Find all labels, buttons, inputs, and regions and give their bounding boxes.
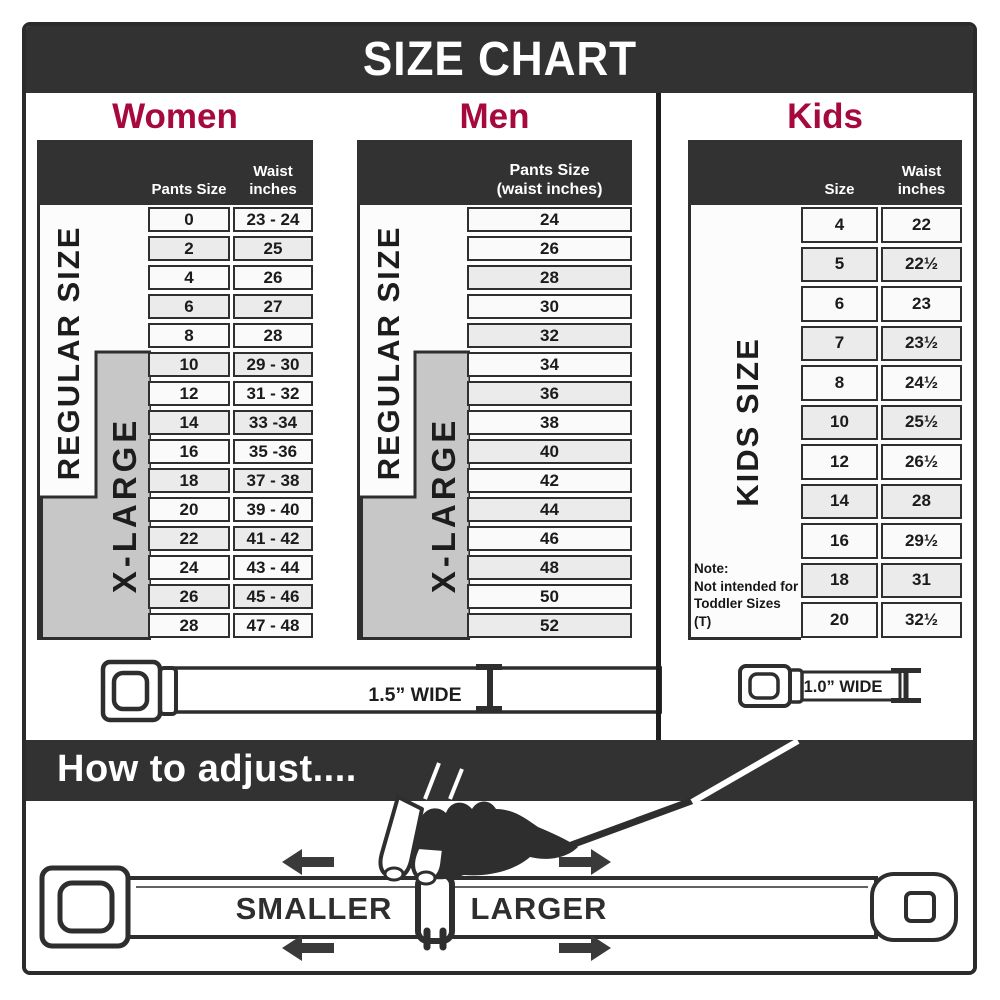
table-row: 1025½ [801,403,962,443]
chart-frame: SIZE CHART Women Men Kids Pants Size Wai… [22,22,977,975]
men-size-range-panel: REGULAR SIZE X-LARGE [357,205,467,640]
size-cell: 14 [148,410,230,435]
table-row: 38 [467,408,632,437]
waist-cell: 22½ [881,247,962,283]
kids-table-body: KIDS SIZE Note: Not intended for Toddler… [688,205,962,640]
size-cell: 22 [148,526,230,551]
tables-area: Women Men Kids Pants Size Waist inches R… [26,93,973,740]
table-row: 723½ [801,324,962,364]
size-cell: 20 [148,497,230,522]
waist-cell: 29 - 30 [233,352,313,377]
table-row: 1029 - 30 [148,350,313,379]
table-row: 1433 -34 [148,408,313,437]
waist-cell: 47 - 48 [233,613,313,638]
men-table-body: REGULAR SIZE X-LARGE 2426283032343638404… [357,205,632,640]
size-cell: 2 [148,236,230,261]
larger-label: LARGER [471,891,608,926]
size-cell: 10 [148,352,230,377]
men-rows: 242628303234363840424446485052 [467,205,632,640]
men-section-title: Men [357,97,632,137]
waist-cell: 23½ [881,326,962,362]
kids-section-title: Kids [688,97,962,137]
kids-size-panel: KIDS SIZE Note: Not intended for Toddler… [688,205,801,640]
adult-belt-illustration: 1.5” WIDE [97,658,662,724]
table-row: 2443 - 44 [148,553,313,582]
size-cell: 24 [467,207,632,232]
table-row: 422 [801,205,962,245]
smaller-label: SMALLER [236,891,393,926]
table-row: 426 [148,263,313,292]
men-size-table: Pants Size (waist inches) REGULAR SIZE X… [357,140,632,640]
table-row: 1837 - 38 [148,466,313,495]
size-cell: 30 [467,294,632,319]
size-cell: 38 [467,410,632,435]
table-row: 44 [467,495,632,524]
waist-cell: 35 -36 [233,439,313,464]
table-row: 24 [467,205,632,234]
belt-latch [160,668,176,714]
table-row: 46 [467,524,632,553]
waist-cell: 37 - 38 [233,468,313,493]
table-row: 824½ [801,363,962,403]
size-cell: 46 [467,526,632,551]
table-row: 2032½ [801,600,962,640]
smaller-arrow-top-icon [282,849,334,875]
size-cell: 28 [467,265,632,290]
table-row: 627 [148,292,313,321]
size-cell: 24 [148,555,230,580]
kids-size-table: Size Waist inches KIDS SIZE Note: Not in… [688,140,962,640]
size-cell: 12 [801,444,878,480]
size-cell: 18 [148,468,230,493]
page-title: SIZE CHART [362,32,636,87]
size-cell: 6 [801,286,878,322]
table-row: 225 [148,234,313,263]
waist-cell: 28 [233,323,313,348]
size-cell: 16 [148,439,230,464]
size-cell: 40 [467,439,632,464]
belt-buckle-button [750,674,778,698]
waist-cell: 39 - 40 [233,497,313,522]
table-row: 48 [467,553,632,582]
size-cell: 12 [148,381,230,406]
kids-belt-illustration: 1.0” WIDE [735,658,935,718]
adult-belt-width-label: 1.5” WIDE [368,684,461,706]
table-row: 40 [467,437,632,466]
kids-size-label: KIDS SIZE [730,337,766,507]
kids-col-size: Size [801,181,878,199]
adjust-illustration: SMALLER LARGER [26,731,973,975]
table-row: 28 [467,263,632,292]
table-row: 30 [467,292,632,321]
women-size-range-panel: REGULAR SIZE X-LARGE [37,205,148,640]
kids-table-header: Size Waist inches [688,140,962,205]
women-regular-size-label: REGULAR SIZE [51,226,87,481]
table-row: 50 [467,582,632,611]
waist-cell: 26½ [881,444,962,480]
size-chart-infographic: SIZE CHART Women Men Kids Pants Size Wai… [0,0,1000,1000]
size-cell: 8 [148,323,230,348]
table-row: 623 [801,284,962,324]
men-regular-size-label: REGULAR SIZE [371,226,407,481]
table-row: 522½ [801,245,962,285]
size-cell: 14 [801,484,878,520]
waist-cell: 22 [881,207,962,243]
table-row: 34 [467,350,632,379]
size-cell: 28 [148,613,230,638]
women-table-header: Pants Size Waist inches [37,140,313,205]
strap-lines-over-band [425,741,798,802]
men-xlarge-label: X-LARGE [425,417,463,594]
waist-cell: 33 -34 [233,410,313,435]
belt-tip-hole [906,893,934,921]
size-cell: 6 [148,294,230,319]
waist-cell: 41 - 42 [233,526,313,551]
size-cell: 0 [148,207,230,232]
table-row: 1635 -36 [148,437,313,466]
size-cell: 16 [801,523,878,559]
waist-cell: 45 - 46 [233,584,313,609]
pulled-strap-line [566,800,694,847]
kids-belt-width-label: 1.0” WIDE [804,678,883,696]
waist-cell: 31 [881,563,962,599]
size-cell: 36 [467,381,632,406]
table-row: 2241 - 42 [148,524,313,553]
size-cell: 5 [801,247,878,283]
waist-cell: 26 [233,265,313,290]
women-col-pants-size: Pants Size [148,181,230,199]
table-row: 1226½ [801,442,962,482]
waist-cell: 32½ [881,602,962,638]
size-cell: 18 [801,563,878,599]
waist-cell: 28 [881,484,962,520]
women-table-body: REGULAR SIZE X-LARGE 023 - 2422542662782… [37,205,313,640]
title-band: SIZE CHART [26,26,973,93]
size-cell: 50 [467,584,632,609]
belt-adjuster-slider [418,875,452,947]
size-cell: 8 [801,365,878,401]
waist-cell: 31 - 32 [233,381,313,406]
belt-buckle-button [114,673,147,709]
table-row: 1629½ [801,521,962,561]
size-cell: 52 [467,613,632,638]
table-row: 023 - 24 [148,205,313,234]
women-xlarge-label: X-LARGE [106,417,144,594]
women-size-table: Pants Size Waist inches REGULAR SIZE X-L… [37,140,313,640]
women-rows: 023 - 242254266278281029 - 301231 - 3214… [148,205,313,640]
size-cell: 42 [467,468,632,493]
women-col-waist: Waist inches [233,163,313,199]
table-row: 42 [467,466,632,495]
table-row: 1428 [801,482,962,522]
table-row: 32 [467,321,632,350]
table-row: 2039 - 40 [148,495,313,524]
size-cell: 10 [801,405,878,441]
waist-cell: 23 [881,286,962,322]
table-row: 36 [467,379,632,408]
section-divider [656,93,661,740]
waist-cell: 25½ [881,405,962,441]
waist-cell: 25 [233,236,313,261]
size-cell: 48 [467,555,632,580]
table-row: 2847 - 48 [148,611,313,640]
waist-cell: 24½ [881,365,962,401]
size-cell: 26 [148,584,230,609]
size-cell: 32 [467,323,632,348]
toddler-note: Note: Not intended for Toddler Sizes (T) [694,560,801,631]
men-table-header: Pants Size (waist inches) [357,140,632,205]
table-row: 26 [467,234,632,263]
table-row: 2645 - 46 [148,582,313,611]
belt-buckle-button [60,883,112,931]
women-section-title: Women [37,97,313,137]
waist-cell: 23 - 24 [233,207,313,232]
kids-col-waist: Waist inches [881,163,962,199]
size-cell: 7 [801,326,878,362]
size-cell: 20 [801,602,878,638]
waist-cell: 27 [233,294,313,319]
size-cell: 26 [467,236,632,261]
men-col-pants-size: Pants Size (waist inches) [467,161,632,199]
table-row: 828 [148,321,313,350]
hand-icon [380,797,578,884]
kids-rows: 422522½623723½824½1025½1226½14281629½183… [801,205,962,640]
waist-cell: 43 - 44 [233,555,313,580]
table-row: 1231 - 32 [148,379,313,408]
size-cell: 4 [801,207,878,243]
size-cell: 4 [148,265,230,290]
size-cell: 44 [467,497,632,522]
table-row: 1831 [801,561,962,601]
size-cell: 34 [467,352,632,377]
waist-cell: 29½ [881,523,962,559]
table-row: 52 [467,611,632,640]
